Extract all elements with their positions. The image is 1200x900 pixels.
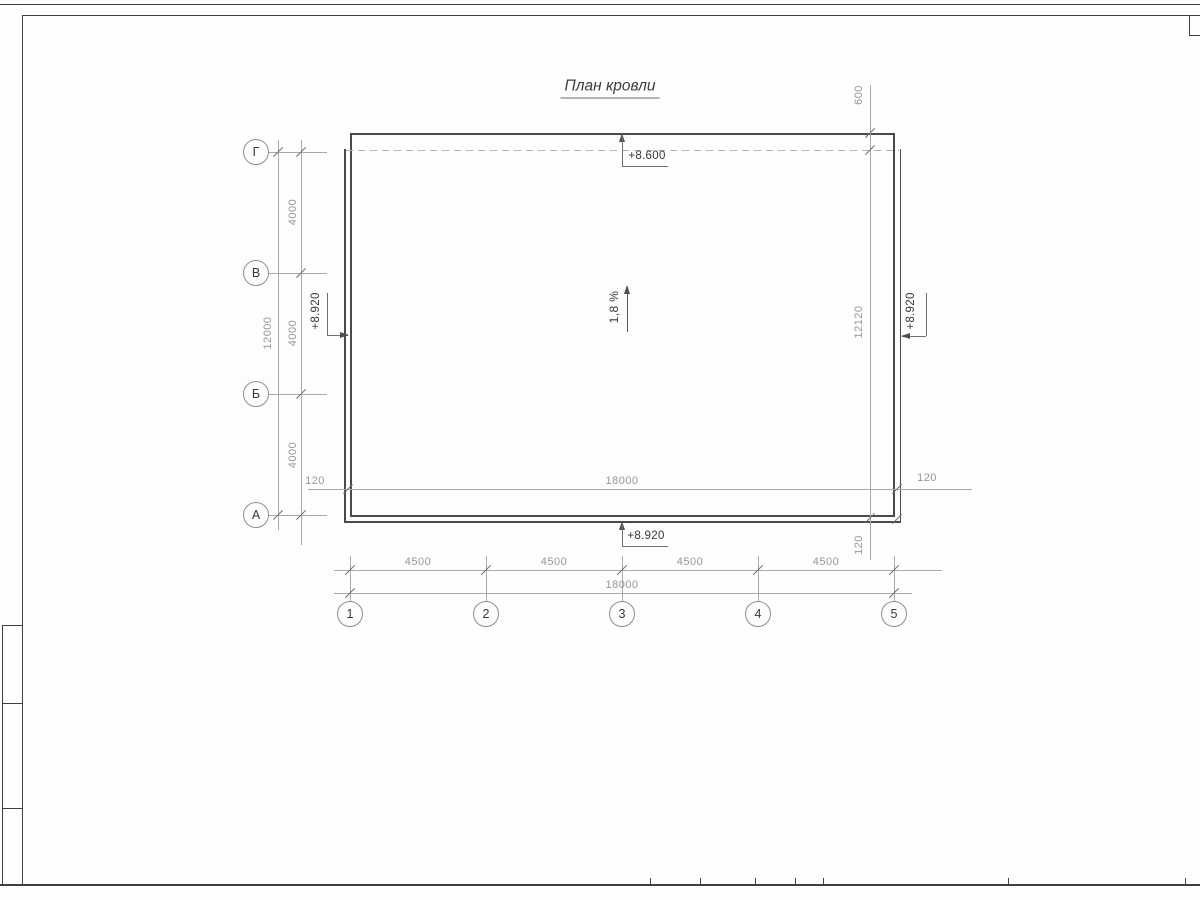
drawing-title: План кровли	[561, 78, 660, 99]
edge-stamp-divider	[2, 808, 23, 809]
col-axis-bubble: 3	[609, 601, 635, 627]
title-block-tick	[650, 878, 651, 884]
title-block-tick	[795, 878, 796, 884]
dim-line-inner-width	[308, 489, 972, 490]
title-block-tick	[755, 878, 756, 884]
elevation-text-bottom: +8.920	[627, 530, 664, 542]
row-axis-label: Г	[253, 145, 260, 159]
axis-leader-col	[350, 556, 351, 601]
col-axis-bubble: 5	[881, 601, 907, 627]
elevation-leader	[622, 523, 623, 546]
title-block-tick	[823, 878, 824, 884]
elevation-leader	[622, 135, 623, 166]
dim-text-inner-width: 18000	[605, 475, 638, 487]
dim-text-overhang-bottom: 120	[853, 535, 865, 555]
dim-text-overhang-top: 600	[853, 85, 865, 105]
dim-line-left-spans	[301, 140, 302, 545]
col-axis-bubble: 1	[337, 601, 363, 627]
axis-leader-col	[894, 556, 895, 601]
slope-arrow-up-icon	[624, 285, 630, 294]
col-axis-label: 5	[891, 607, 898, 621]
title-block-tick	[1185, 878, 1186, 884]
elevation-leader	[926, 293, 927, 336]
dim-text-overhang-right: 120	[917, 472, 937, 484]
paper-top-line	[0, 4, 1200, 5]
dim-text-bottom-span: 4500	[405, 556, 431, 568]
dim-line-bottom-spans	[334, 570, 942, 571]
row-axis-bubble: Г	[243, 139, 269, 165]
dim-text-bottom-span: 4500	[677, 556, 703, 568]
col-axis-label: 1	[347, 607, 354, 621]
row-axis-label: В	[252, 266, 260, 280]
elevation-arrow-left-icon	[901, 333, 910, 339]
col-axis-label: 4	[755, 607, 762, 621]
title-block-tick	[700, 878, 701, 884]
row-axis-label: Б	[252, 387, 260, 401]
edge-stamp-divider	[2, 703, 23, 704]
edge-stamp-left-line	[2, 625, 3, 884]
row-axis-bubble: Б	[243, 381, 269, 407]
dim-text-bottom-span: 4500	[541, 556, 567, 568]
col-axis-bubble: 2	[473, 601, 499, 627]
axis-leader-col	[758, 556, 759, 601]
dim-line-bottom-total	[334, 593, 912, 594]
row-axis-bubble: В	[243, 260, 269, 286]
dim-text-overhang-left: 120	[305, 475, 325, 487]
dim-text-left-total: 12000	[262, 316, 274, 349]
row-axis-label: А	[252, 508, 260, 522]
row-axis-bubble: А	[243, 502, 269, 528]
frame-top-line	[22, 15, 1200, 16]
dim-text-bottom-total: 18000	[605, 579, 638, 591]
frame-left-line	[22, 15, 23, 885]
dim-text-bottom-span: 4500	[813, 556, 839, 568]
corner-box-bottom-line	[1189, 35, 1200, 36]
dim-text-left-span: 4000	[287, 320, 299, 346]
edge-stamp-divider	[2, 625, 23, 626]
col-axis-bubble: 4	[745, 601, 771, 627]
elevation-text-left: +8.920	[310, 292, 322, 329]
elevation-text-top: +8.600	[628, 150, 665, 162]
frame-bottom-line	[0, 884, 1200, 886]
corner-box-left-line	[1189, 15, 1190, 35]
dim-text-left-span: 4000	[287, 199, 299, 225]
col-axis-label: 2	[483, 607, 490, 621]
elevation-text-right: +8.920	[905, 292, 917, 329]
dim-text-left-span: 4000	[287, 442, 299, 468]
dim-line-left-total	[278, 140, 279, 530]
col-axis-label: 3	[619, 607, 626, 621]
slope-text: 1,8 %	[607, 291, 621, 324]
title-block-tick	[1008, 878, 1009, 884]
elevation-leader	[327, 293, 328, 335]
elevation-underline	[622, 546, 668, 547]
elevation-arrow-right-icon	[340, 332, 349, 338]
roof-outline	[350, 133, 895, 517]
dim-text-right-height: 12120	[853, 305, 865, 338]
axis-leader-col	[486, 556, 487, 601]
elevation-underline	[622, 166, 668, 167]
drawing-sheet: План кровли Г В Б А 1 2 3 4 5	[0, 0, 1200, 900]
